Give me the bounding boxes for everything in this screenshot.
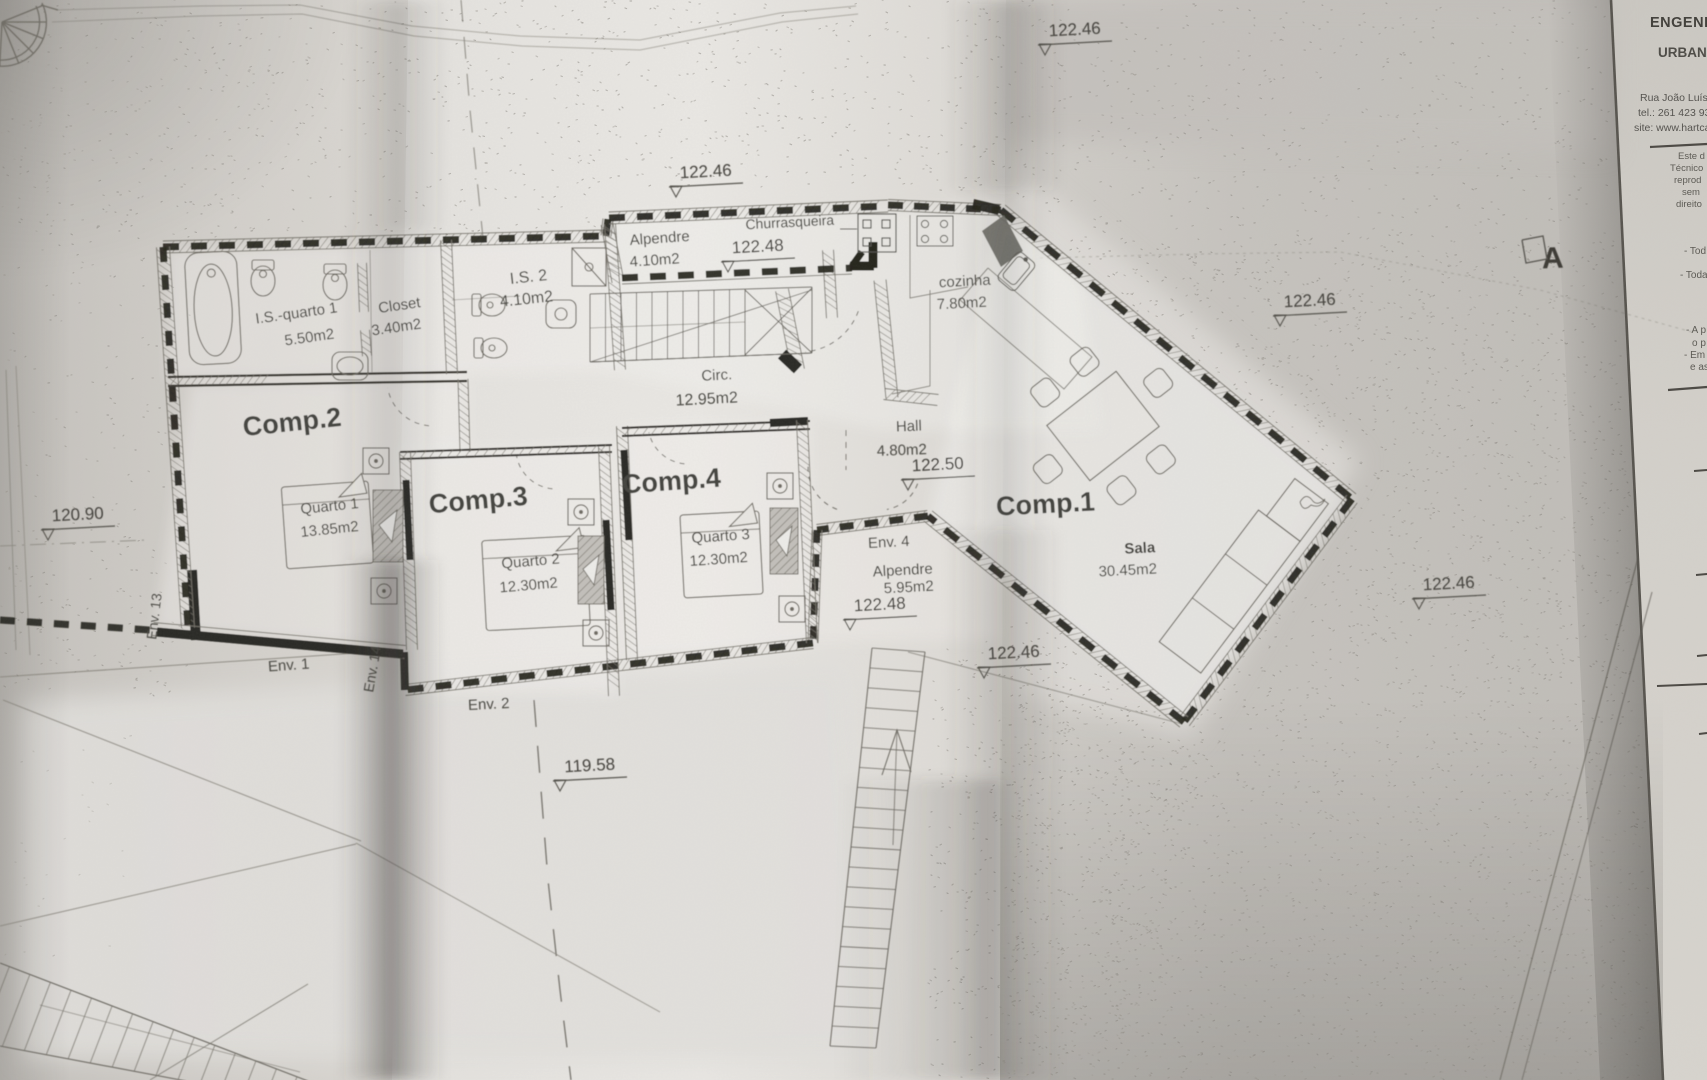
svg-text:- A p: - A p xyxy=(1686,325,1706,336)
svg-text:sem: sem xyxy=(1682,187,1700,198)
svg-text:o p: o p xyxy=(1692,338,1706,349)
svg-text:ENGENHA: ENGENHA xyxy=(1650,15,1707,31)
svg-text:reprod: reprod xyxy=(1674,175,1701,186)
svg-text:Técnico: Técnico xyxy=(1670,163,1703,174)
svg-text:Este d: Este d xyxy=(1678,151,1705,162)
svg-text:- Toda: - Toda xyxy=(1680,270,1707,281)
svg-text:tel.: 261 423 93: tel.: 261 423 93 xyxy=(1638,107,1707,119)
svg-text:direito: direito xyxy=(1676,199,1702,210)
svg-text:site: www.hartca: site: www.hartca xyxy=(1634,122,1707,134)
svg-text:e as: e as xyxy=(1690,362,1707,373)
svg-text:- Tod: - Tod xyxy=(1684,246,1706,257)
svg-text:URBANIS: URBANIS xyxy=(1658,45,1707,60)
svg-text:Rua João Luís c: Rua João Luís c xyxy=(1640,92,1707,104)
svg-text:- Em: - Em xyxy=(1684,350,1705,361)
